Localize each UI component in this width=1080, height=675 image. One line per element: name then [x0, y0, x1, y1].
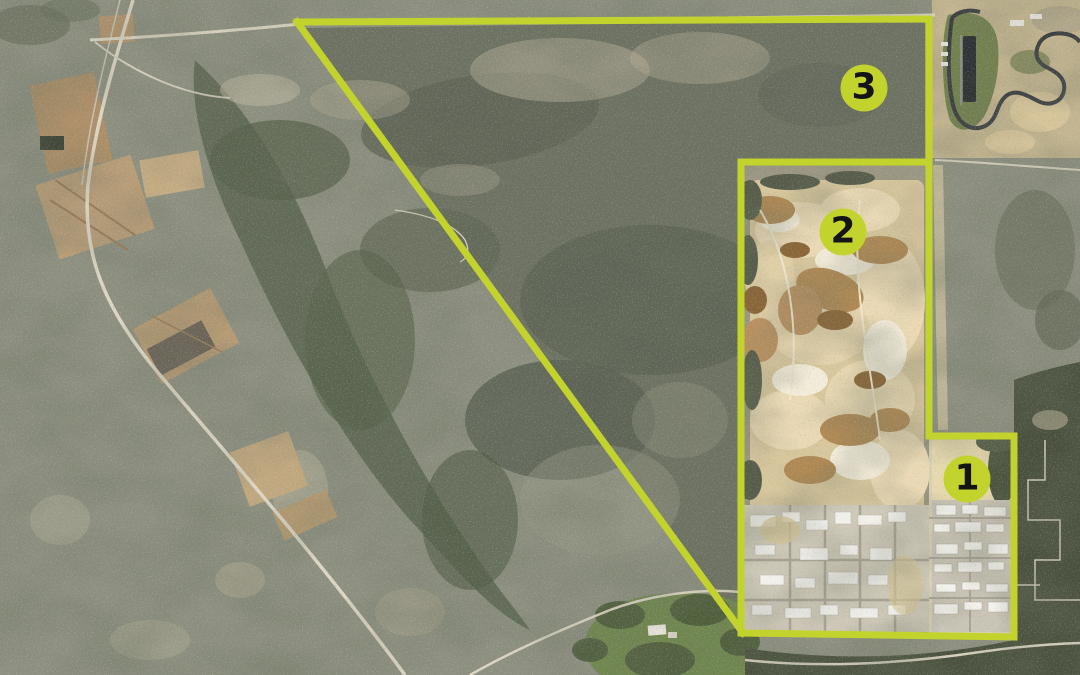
area-marker-2-label: 2 — [830, 213, 855, 249]
area-marker-3: 3 — [841, 65, 888, 112]
area-marker-1-label: 1 — [954, 460, 979, 496]
satellite-image — [0, 0, 1080, 675]
area-marker-3-label: 3 — [851, 69, 876, 105]
south-shared-edge — [741, 633, 1014, 637]
area-marker-1: 1 — [944, 456, 991, 503]
area-marker-2: 2 — [820, 209, 867, 256]
annotated-aerial-map: 1 2 3 — [0, 0, 1080, 675]
photo-texture — [0, 0, 1080, 675]
